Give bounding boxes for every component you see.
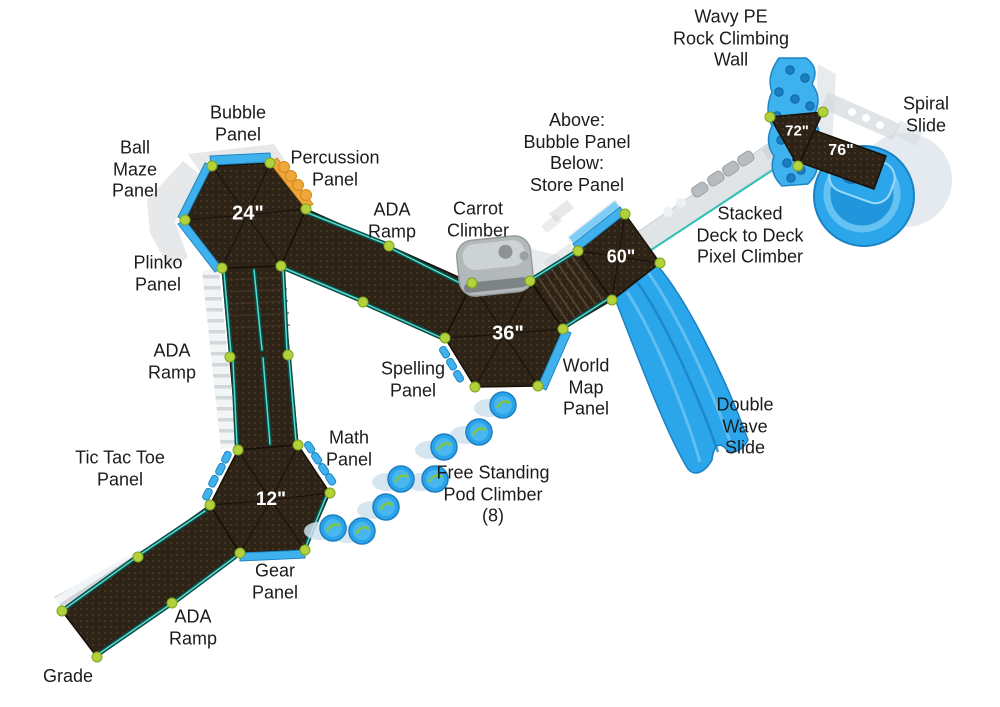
- pixel-climber-walkway: [636, 138, 786, 251]
- pod-climber-3: [415, 434, 457, 460]
- pod-climber-6: [357, 494, 399, 520]
- pod-climber-1: [474, 392, 516, 418]
- playground-structure-svg: [0, 0, 1000, 707]
- pod-climber-5: [372, 466, 414, 492]
- pod-climbers: [304, 392, 516, 544]
- playground-plan-diagram: Wavy PE Rock Climbing Wall Spiral Slide …: [0, 0, 1000, 707]
- carrot-climber: [455, 234, 534, 297]
- double-wave-slide: [615, 265, 748, 473]
